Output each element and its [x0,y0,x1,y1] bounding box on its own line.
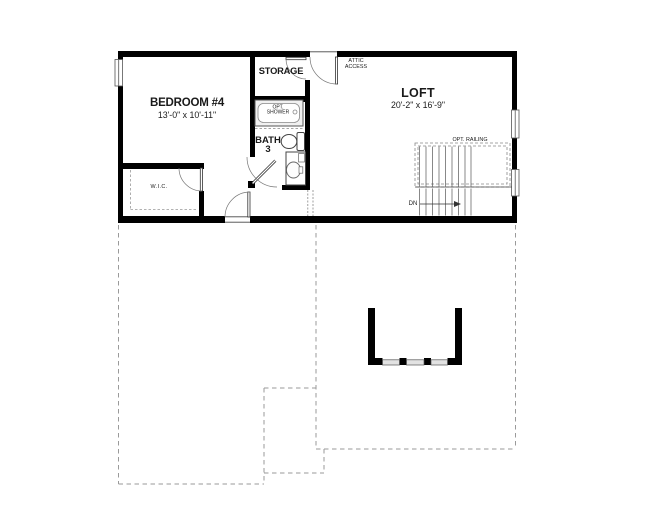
stair-treads-lower [420,189,472,216]
right-wall-middle [512,138,517,170]
floor-plan-drawing [0,0,658,520]
bath-bottom-wall [282,185,310,190]
attic-door-swing-arc [310,57,337,84]
opt-railing-inner [418,146,507,184]
open-below-dashed [308,190,313,216]
right-wall-top [512,57,517,110]
stair-treads-upper [420,147,472,187]
storage-loft-wall [305,80,310,96]
bedroom-hall-door-swing-arc [225,192,250,217]
lower-wall-bottom-1 [368,358,383,365]
attic-access-label: ATTIC ACCESS [345,58,367,70]
stair-down-label: DN [409,201,418,207]
staircase [415,143,512,216]
lower-level-wall [368,308,462,365]
storage-door-leaf [286,57,306,59]
toilet [281,133,304,151]
bedroom4-dimensions: 13'-0" x 10'-11" [158,110,216,120]
bottom-wall-left [118,216,225,223]
opt-shower-line2: SHOWER [267,111,290,116]
loft-label: LOFT [401,86,435,100]
sink-bowl [287,162,301,178]
wic-label: W.I.C. [150,184,167,190]
storage-label: STORAGE [259,66,303,76]
bottom-wall-right [250,216,517,223]
attic-access-door [310,57,338,84]
lower-wall-right [455,308,462,365]
bath3-label: BATH 3 [255,136,281,154]
opt-railing-outer [415,143,510,187]
attic-door-leaf [335,57,337,84]
attic-access-line2: ACCESS [345,64,367,70]
top-wall-right [337,51,517,57]
wic-right-wall [199,191,204,216]
lower-wall-bottom-4 [448,358,463,365]
bath-door-leaf-inner [253,161,276,184]
loft-dimensions: 20'-2" x 16'-9" [391,100,445,110]
lower-wall-bottom-3 [424,358,431,365]
top-wall-left [118,51,310,57]
floor-plan-canvas: BEDROOM #4 13'-0" x 10'-11" STORAGE ATTI… [0,0,658,520]
toilet-bowl [281,135,297,149]
lower-window-1 [383,360,400,365]
wic-door [179,168,203,191]
bedroom-hall-door-leaf [248,192,250,217]
right-wall-bottom [512,196,517,216]
wic-door-swing-arc [179,168,202,191]
wic-door-leaf [200,168,202,191]
sink-faucet [299,167,303,173]
wic-top-wall [118,163,204,169]
sink-vanity [286,152,306,185]
lower-wall-bottom-2 [400,358,407,365]
left-wall-bottom [118,86,123,216]
interior-walls [118,57,310,216]
lower-window-3 [431,360,448,365]
opt-shower-label: OPT. SHOWER [267,106,290,117]
toilet-tank [297,133,305,151]
bedroom4-label: BEDROOM #4 [150,97,224,109]
lower-window-2 [407,360,425,365]
opt-railing-label: OPT. RAILING [452,137,487,143]
bath3-number: 3 [255,145,281,154]
lower-wall-left [368,308,375,365]
bedroom-hall-door [225,192,250,217]
